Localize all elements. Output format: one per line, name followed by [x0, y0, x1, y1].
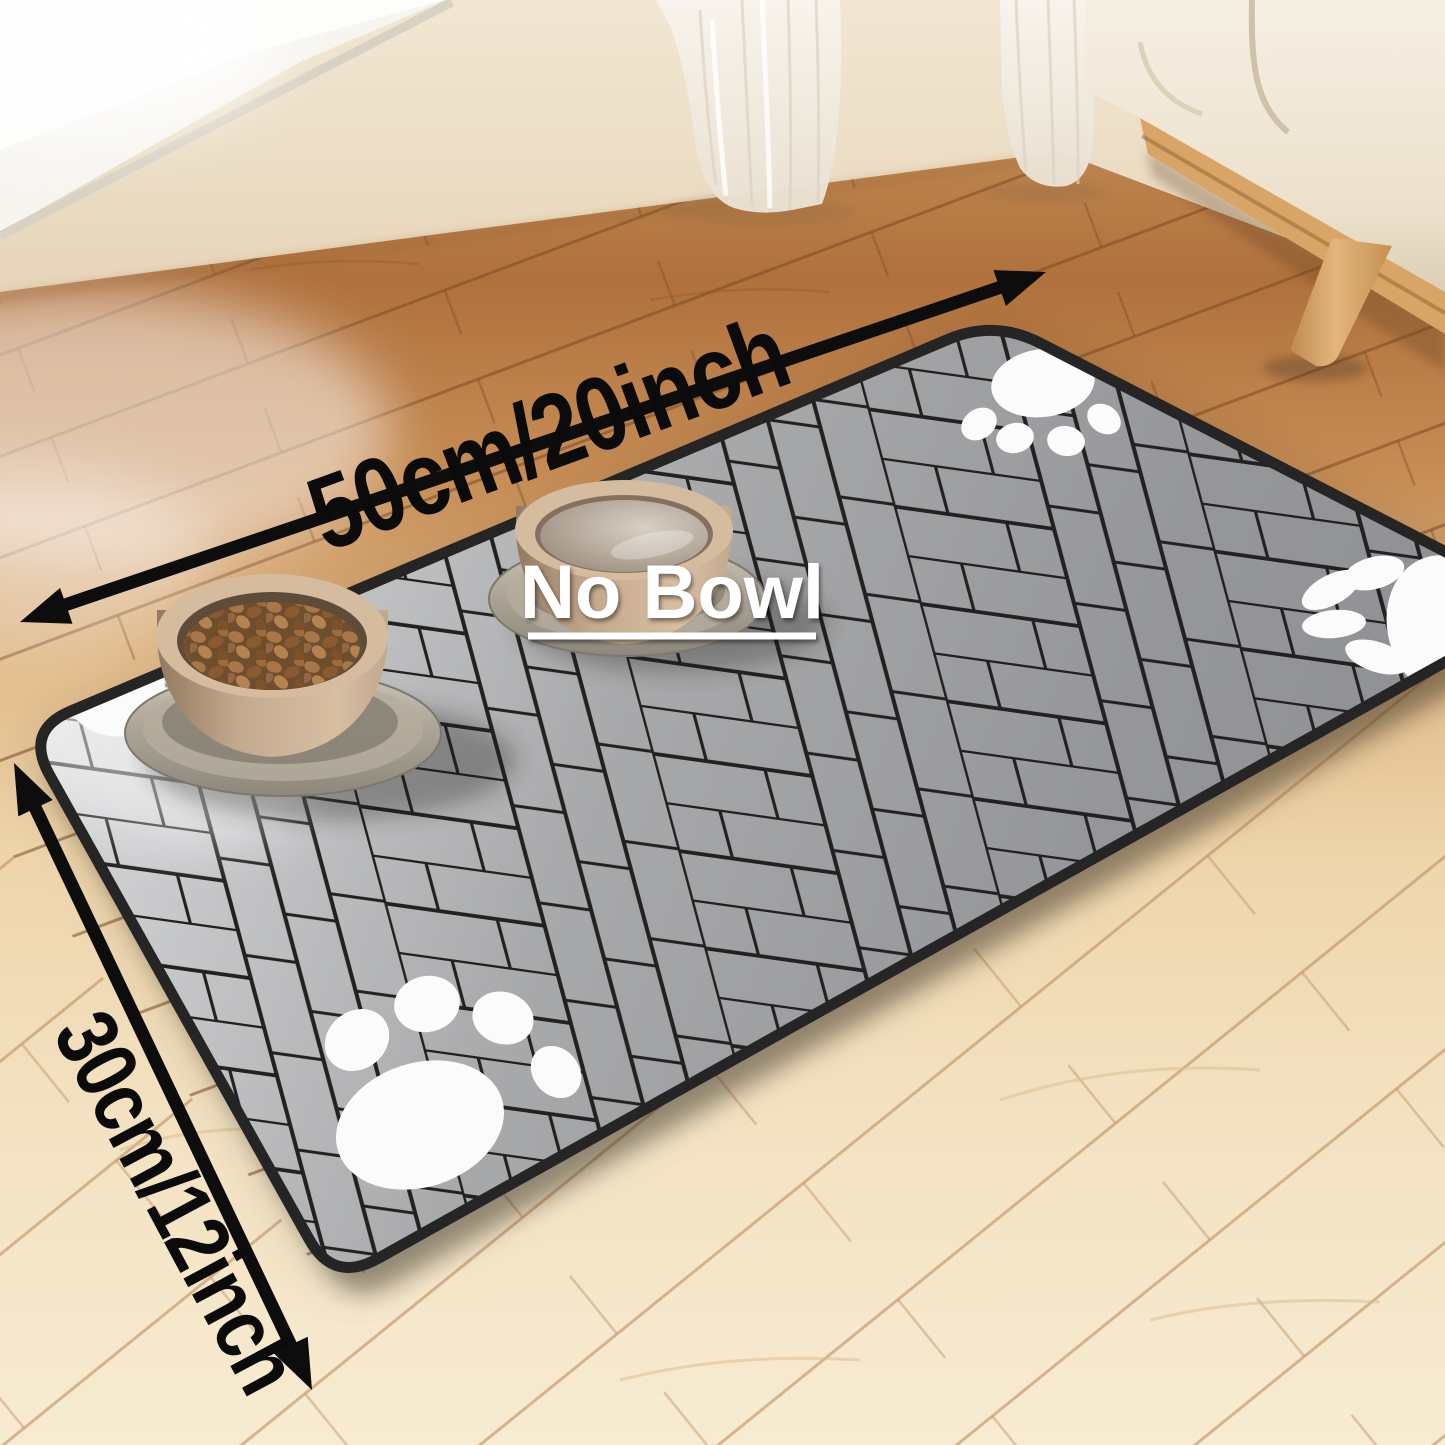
no-bowl-label: No Bowl: [520, 550, 824, 636]
no-bowl-text: No Bowl: [520, 550, 824, 635]
product-photo: No Bowl 50cm/20inch 30cm/12inch: [0, 0, 1445, 1445]
kibble: [184, 602, 360, 690]
scene: No Bowl 50cm/20inch 30cm/12inch: [0, 0, 1445, 1445]
